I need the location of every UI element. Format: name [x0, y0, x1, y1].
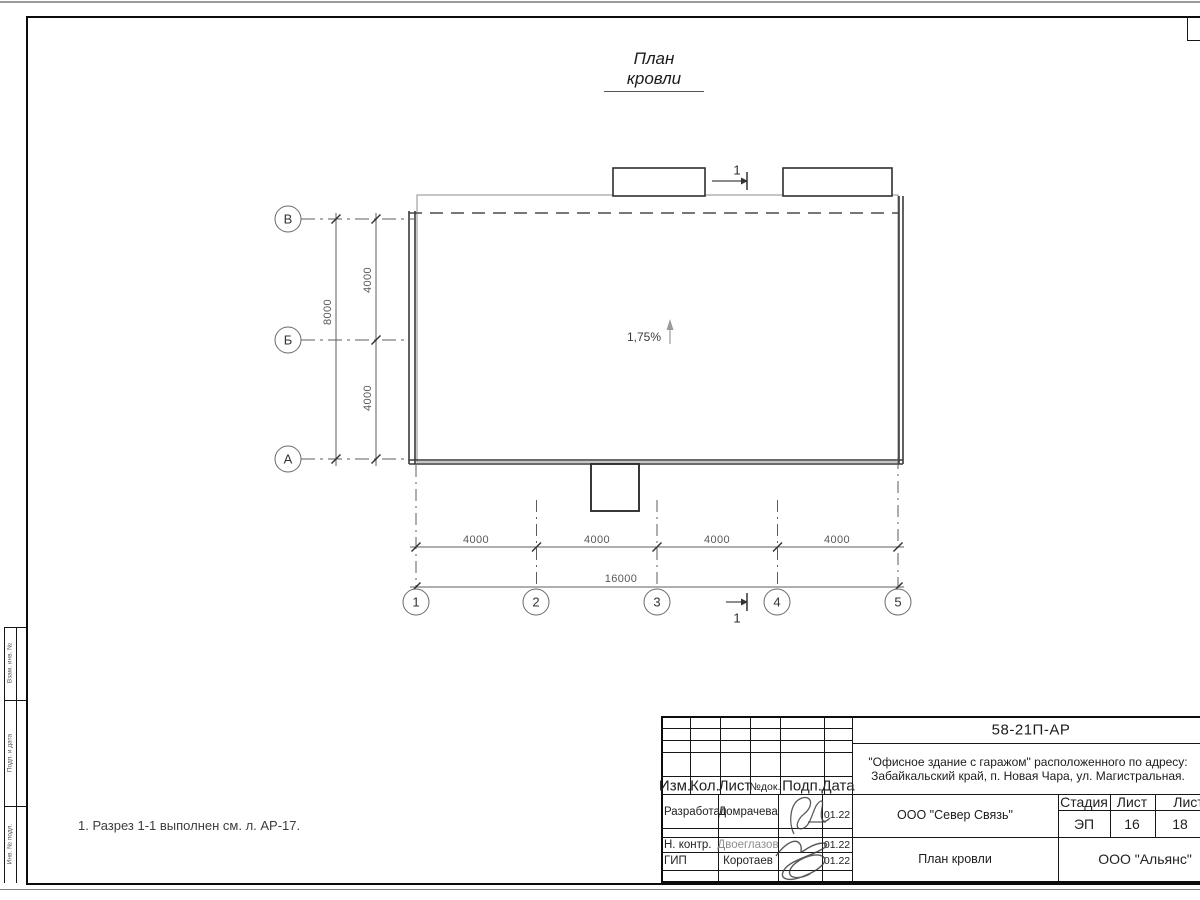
roof-outline [417, 195, 898, 462]
tb-sheets-value: 18 [1172, 816, 1188, 832]
tb-col-sheet [1155, 794, 1156, 837]
axis-bubble-col-5: 5 [885, 589, 912, 616]
tb-stage-header: Стадия [1060, 794, 1108, 810]
tb-stage-value: ЭП [1074, 816, 1094, 832]
tb-docnum-bottom [852, 743, 1200, 744]
tb-bottom [661, 881, 1200, 883]
tb-name-domracheva: Домрачева [718, 806, 778, 818]
dim-total-vertical: 8000 [322, 299, 334, 325]
tb-company: ООО "Альянс" [1098, 851, 1192, 867]
dim-v-segment-1: 4000 [362, 267, 374, 293]
tb-org: ООО "Север Связь" [897, 808, 1013, 822]
tb-project-line1: "Офисное здание с гаражом" расположенног… [868, 755, 1187, 769]
signature-korotaev [772, 834, 852, 884]
tb-stage-header-bottom [1058, 810, 1200, 811]
axis-bubble-row-a: А [275, 446, 302, 473]
tb-header-ndok: №док. [750, 781, 781, 793]
tb-role-gip: ГИП [664, 855, 687, 867]
tb-top [661, 716, 1200, 718]
dim-total-horizontal: 16000 [605, 573, 638, 585]
tb-sheets-header: Листов [1173, 794, 1200, 810]
tb-header-kol: Кол. [690, 778, 720, 795]
tb-right-section-left [1058, 794, 1059, 881]
tb-sheet-title: План кровли [918, 852, 992, 866]
row-axis-lines [301, 219, 415, 459]
tb-header-list: Лист [719, 778, 752, 795]
axis-bubble-row-v: В [275, 206, 302, 233]
tb-name-dvoeglazov: Двоеглазов [717, 839, 778, 851]
section-label-bottom: 1 [733, 611, 740, 626]
axis-bubble-col-3: 3 [644, 589, 671, 616]
section-marker-top [712, 172, 748, 190]
tb-project-line2: Забайкальский край, п. Новая Чара, ул. М… [871, 769, 1185, 783]
tb-col-stage [1110, 794, 1111, 837]
col-axis-lines [416, 457, 898, 588]
axis-bubble-col-1: 1 [403, 589, 430, 616]
dim-v-segment-2: 4000 [362, 385, 374, 411]
dim-h-segment-1: 4000 [463, 534, 489, 546]
slope-label: 1,75% [627, 330, 661, 344]
tb-doc-number: 58-21П-АР [992, 722, 1071, 739]
axis-bubble-col-2: 2 [523, 589, 550, 616]
axis-bubble-row-b: Б [275, 327, 302, 354]
tb-role-nkontr: Н. контр. [664, 839, 711, 851]
tb-role-razrabotal: Разработал [664, 806, 727, 818]
tb-sheet-header: Лист [1117, 794, 1147, 810]
slope-arrow-icon [667, 319, 674, 344]
axis-bubble-col-4: 4 [764, 589, 791, 616]
dim-h-segment-4: 4000 [824, 534, 850, 546]
tb-sheet-value: 16 [1124, 816, 1140, 832]
tb-name-korotaev: Коротаев [723, 855, 773, 867]
drawing-sheet: Взам. инв. № Подп. и дата Инв. № подл. П… [0, 0, 1200, 900]
dim-h-segment-3: 4000 [704, 534, 730, 546]
section-marker-bottom [726, 593, 748, 611]
tb-row-mid [661, 837, 1200, 838]
tb-header-izm: Изм. [659, 778, 691, 795]
dimension-lines [336, 213, 904, 587]
dim-h-segment-2: 4000 [584, 534, 610, 546]
section-label-top: 1 [733, 163, 740, 178]
